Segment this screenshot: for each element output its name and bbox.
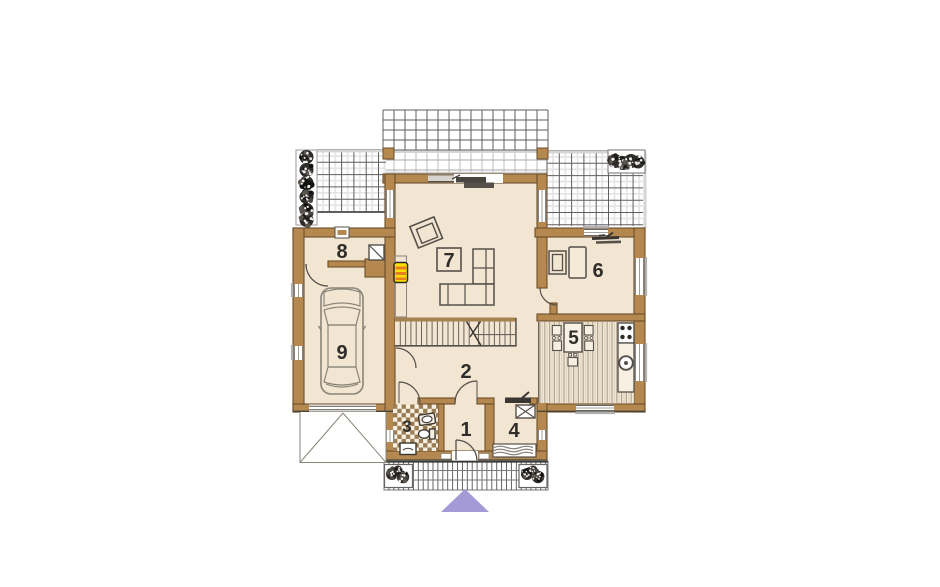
svg-text:2: 2 [460, 361, 471, 383]
svg-text:3: 3 [402, 417, 411, 436]
svg-text:4: 4 [508, 420, 520, 442]
svg-text:5: 5 [568, 328, 579, 349]
svg-text:8: 8 [336, 241, 347, 263]
svg-text:6: 6 [592, 260, 603, 282]
svg-text:7: 7 [443, 250, 454, 272]
svg-text:1: 1 [460, 419, 471, 441]
svg-text:9: 9 [336, 342, 347, 364]
